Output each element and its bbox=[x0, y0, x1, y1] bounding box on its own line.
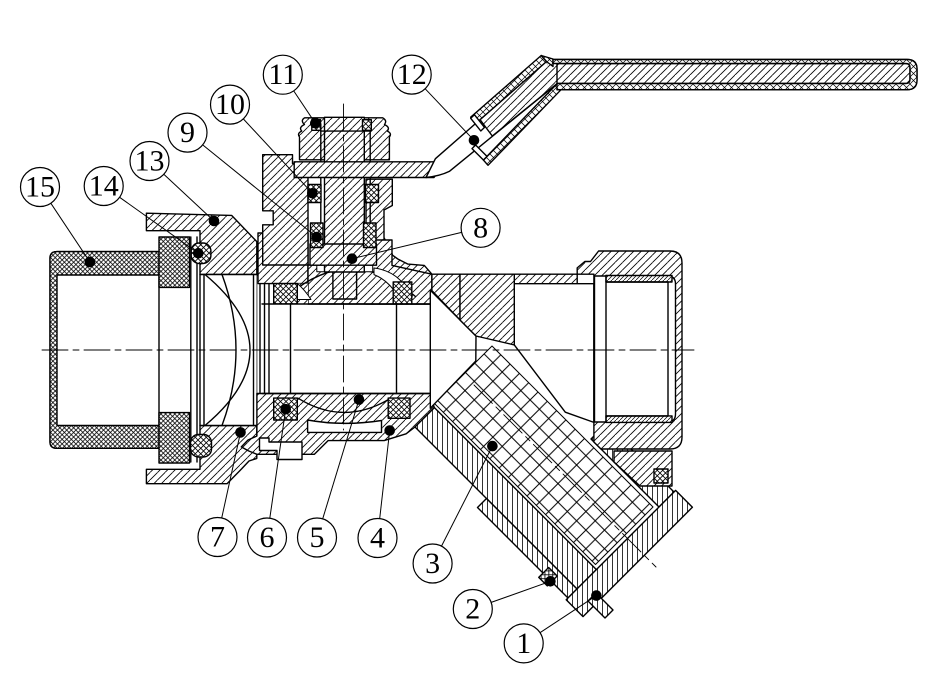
svg-text:11: 11 bbox=[268, 58, 297, 91]
svg-text:5: 5 bbox=[310, 521, 325, 554]
svg-text:10: 10 bbox=[215, 88, 245, 121]
svg-text:6: 6 bbox=[260, 521, 275, 554]
svg-text:2: 2 bbox=[465, 593, 480, 626]
svg-text:12: 12 bbox=[397, 58, 427, 91]
svg-text:9: 9 bbox=[180, 116, 195, 149]
svg-text:13: 13 bbox=[135, 145, 165, 178]
svg-text:4: 4 bbox=[370, 522, 385, 555]
svg-text:15: 15 bbox=[25, 171, 55, 204]
svg-text:14: 14 bbox=[89, 170, 119, 203]
svg-text:1: 1 bbox=[516, 627, 531, 660]
svg-text:8: 8 bbox=[473, 211, 488, 244]
svg-text:7: 7 bbox=[210, 521, 225, 554]
svg-text:3: 3 bbox=[425, 547, 440, 580]
